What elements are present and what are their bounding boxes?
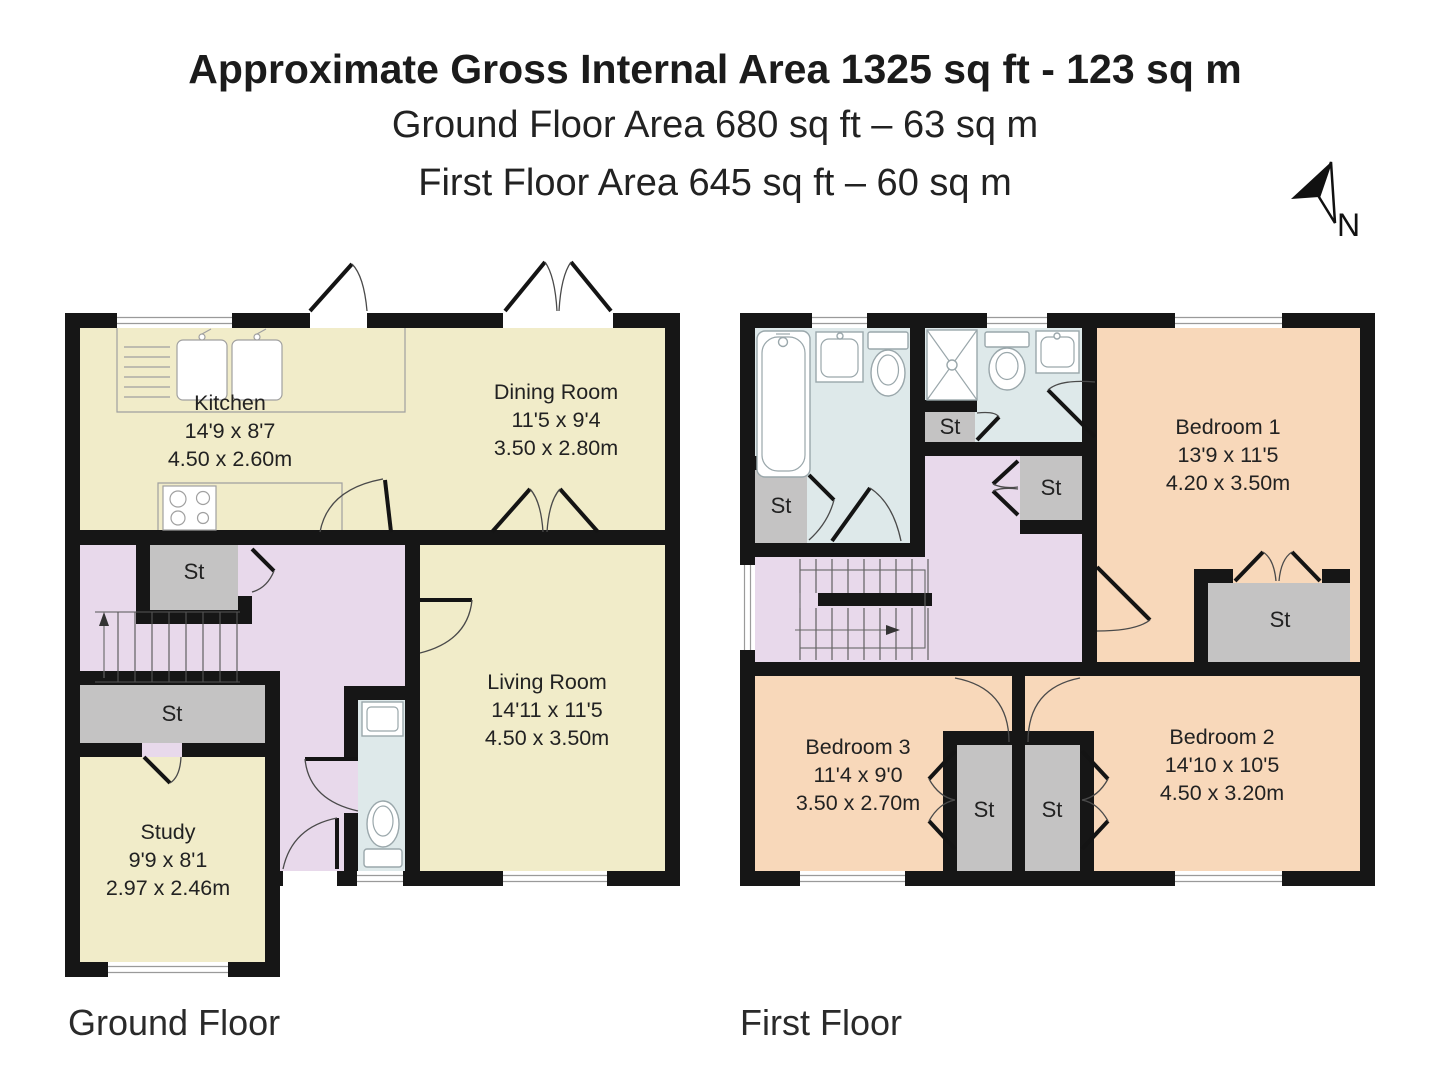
wc-toilet-icon	[364, 801, 402, 867]
wc-basin-icon	[362, 702, 403, 736]
room-landing-stairs	[755, 557, 925, 662]
storage-label-bathroom: St	[771, 493, 792, 519]
bathtub-icon	[757, 331, 810, 477]
storage-label-hall-bottom: St	[162, 701, 183, 727]
dining-french-door-opening	[503, 313, 613, 328]
living-label: Living Room14'11 x 11'54.50 x 3.50m	[485, 668, 609, 752]
ground-floor-caption: Ground Floor	[68, 1002, 280, 1044]
first-floor-stairs	[795, 559, 932, 660]
bedroom2-label: Bedroom 214'10 x 10'54.50 x 3.20m	[1160, 723, 1284, 807]
bathroom-toilet-icon	[868, 332, 908, 396]
study-label: Study9'9 x 8'12.97 x 2.46m	[106, 818, 230, 902]
first-floor-caption: First Floor	[740, 1002, 902, 1044]
ground-area-subtitle: Ground Floor Area 680 sq ft – 63 sq m	[392, 104, 1038, 147]
storage-label-hall-top: St	[184, 559, 205, 585]
north-label: N	[1337, 207, 1360, 244]
first-area-subtitle: First Floor Area 645 sq ft – 60 sq m	[418, 162, 1011, 205]
storage-label-shower: St	[940, 414, 961, 440]
storage-label-bedroom3: St	[974, 797, 995, 823]
hob-icon	[163, 486, 216, 530]
ensuite-basin-icon	[1036, 331, 1079, 373]
north-arrow-icon	[1291, 162, 1335, 223]
shower-icon	[927, 330, 977, 400]
bedroom1-label: Bedroom 113'9 x 11'54.20 x 3.50m	[1166, 413, 1290, 497]
storage-label-bedroom1: St	[1270, 607, 1291, 633]
page-title: Approximate Gross Internal Area 1325 sq …	[188, 46, 1241, 93]
storage-label-bedroom2: St	[1042, 797, 1063, 823]
storage-label-landing: St	[1041, 475, 1062, 501]
bathroom-basin-icon	[816, 332, 863, 382]
kitchen-label: Kitchen14'9 x 8'74.50 x 2.60m	[168, 389, 292, 473]
floorplan-page: Approximate Gross Internal Area 1325 sq …	[0, 0, 1440, 1080]
dining-label: Dining Room11'5 x 9'43.50 x 2.80m	[494, 378, 618, 462]
kitchen-back-door-opening	[310, 313, 367, 328]
ensuite-toilet-icon	[985, 332, 1029, 390]
bedroom3-label: Bedroom 311'4 x 9'03.50 x 2.70m	[796, 733, 920, 817]
front-door-opening	[283, 871, 337, 886]
